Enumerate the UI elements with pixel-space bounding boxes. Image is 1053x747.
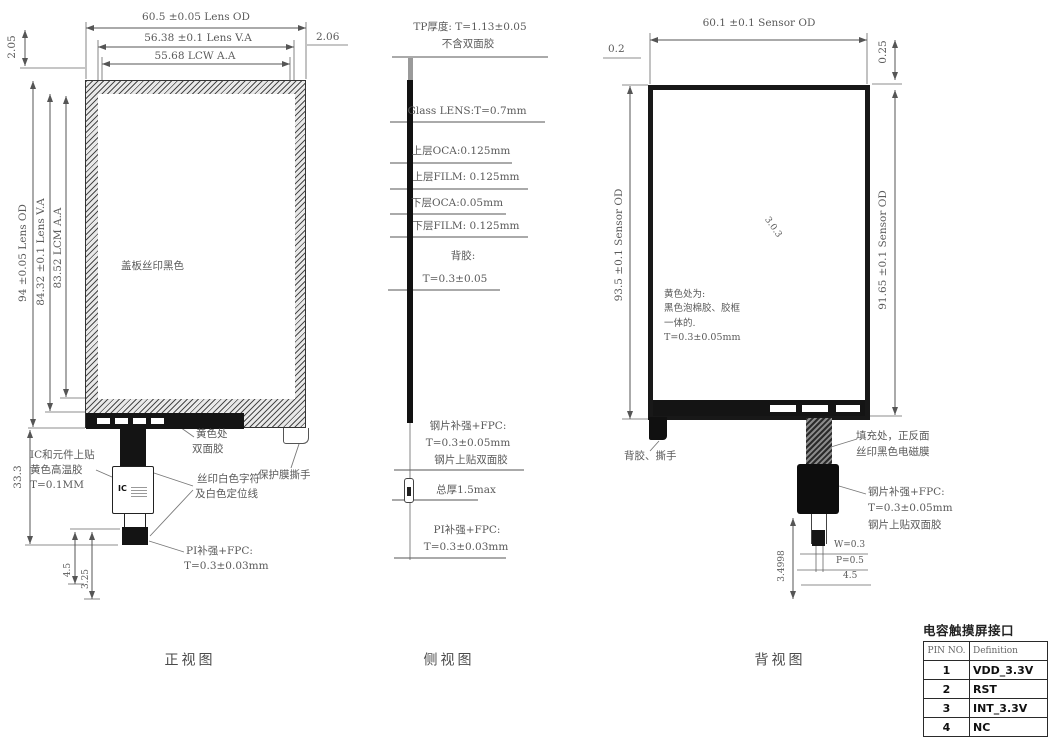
dim-back-0-25: 0.25: [878, 40, 890, 63]
note-fill-line1: 填充处，正反面: [856, 431, 930, 443]
pin-table-header-row: PIN NO. Definition: [924, 642, 1048, 661]
dim-back-0-2: 0.2: [608, 44, 625, 56]
note-back-tear: 背胶、撕手: [624, 451, 677, 463]
back-steel-stiffener: [797, 464, 839, 514]
back-connector-contact: [812, 530, 825, 546]
pin-number: 1: [924, 661, 970, 680]
dim-front-left-va: 84.32 ±0.1 Lens V.A: [36, 198, 48, 306]
note-tp-thickness-line1: TP厚度: T=1.13±0.05: [413, 22, 526, 34]
front-panel-bezel: [85, 80, 306, 428]
front-viewing-area: [98, 94, 295, 399]
note-side-pi-line2: T=0.3±0.03mm: [424, 542, 509, 554]
note-ic-line2: 黄色高温胶: [30, 465, 83, 477]
dim-front-left-aa: 83.52 LCM A.A: [53, 208, 65, 289]
note-cover-silk: 盖板丝印黑色: [121, 261, 184, 273]
pin-definition: NC: [970, 718, 1048, 737]
note-foam-line1: 黄色处为:: [664, 290, 705, 300]
dim-front-3-25: 3.25: [82, 569, 92, 589]
pin-definition: RST: [970, 680, 1048, 699]
bond-pad: [836, 405, 860, 412]
note-side-pi-line1: PI补强+FPC:: [434, 525, 501, 537]
note-back-steel-line2: T=0.3±0.05mm: [868, 503, 953, 515]
front-pi-stiffener: [122, 527, 148, 545]
dim-front-top-od: 60.5 ±0.05 Lens OD: [142, 12, 250, 24]
bond-pad: [133, 418, 146, 424]
front-fpc-tail: [120, 428, 146, 468]
note-foam-line2: 黑色泡棉胶、胶框: [664, 304, 740, 314]
dim-back-4-5: 4.5: [843, 572, 857, 582]
note-side-steel-line3: 钢片上贴双面胶: [434, 455, 508, 467]
side-connector-bump: [404, 478, 414, 503]
note-upper-oca: 上层OCA:0.125mm: [412, 146, 511, 158]
pin-number: 2: [924, 680, 970, 699]
note-glass-lens: Glass LENS:T=0.7mm: [407, 106, 526, 118]
note-lower-film: 下层FILM: 0.125mm: [412, 221, 519, 233]
dim-front-top-aa: 55.68 LCW A.A: [154, 51, 235, 63]
front-view-title: 正视图: [165, 653, 216, 668]
dim-front-2-06: 2.06: [316, 32, 339, 44]
table-row: 3 INT_3.3V: [924, 699, 1048, 718]
dim-front-33-3: 33.3: [13, 465, 25, 488]
back-view-title: 背视图: [755, 653, 806, 668]
ic-component: IC: [112, 466, 154, 514]
note-upper-film: 上层FILM: 0.125mm: [412, 172, 519, 184]
dim-front-left-od: 94 ±0.05 Lens OD: [18, 204, 30, 302]
dim-back-right-od: 91.65 ±0.1 Sensor OD: [878, 190, 890, 310]
note-side-steel-line1: 钢片补强+FPC:: [430, 421, 507, 433]
note-back-adhesive-line2: T=0.3±0.05: [423, 274, 488, 286]
note-side-steel-line2: T=0.3±0.05mm: [426, 438, 511, 450]
table-row: 2 RST: [924, 680, 1048, 699]
pin-table-header-pin: PIN NO.: [924, 642, 970, 661]
bond-pad: [97, 418, 110, 424]
front-bottom-black-band: [86, 413, 244, 429]
back-bottom-black-band: [653, 400, 865, 416]
note-tp-thickness-line2: 不含双面胶: [442, 39, 495, 51]
bond-pad: [115, 418, 128, 424]
dim-back-left-od: 93.5 ±0.1 Sensor OD: [614, 189, 626, 302]
dim-back-top-od: 60.1 ±0.1 Sensor OD: [703, 18, 816, 30]
note-front-pi-line1: PI补强+FPC:: [186, 546, 253, 558]
pin-definition: VDD_3.3V: [970, 661, 1048, 680]
table-row: 4 NC: [924, 718, 1048, 737]
bond-pad: [770, 405, 796, 412]
side-view-title: 侧视图: [424, 653, 475, 668]
dim-back-3-4998: 3.4998: [778, 550, 788, 582]
pin-number: 3: [924, 699, 970, 718]
front-fpc-neck: [124, 514, 146, 528]
note-ic-line3: T=0.1MM: [30, 480, 84, 492]
note-tape-line1: 黄色处: [196, 429, 228, 441]
pin-definition: INT_3.3V: [970, 699, 1048, 718]
pin-number: 4: [924, 718, 970, 737]
back-fpc-tail-filled: [806, 418, 832, 465]
dim-front-4-5: 4.5: [64, 563, 74, 577]
dim-front-2-05: 2.05: [7, 35, 19, 58]
dim-back-w: W=0.3: [834, 541, 865, 551]
dim-front-top-va: 56.38 ±0.1 Lens V.A: [144, 33, 252, 45]
back-tear-tab: [649, 417, 667, 440]
pin-table-header-def: Definition: [970, 642, 1048, 661]
note-protective-film: 保护膜撕手: [258, 470, 311, 482]
ctp-drawing-canvas: IC 60.5 ±0.05 Lens OD 56.38 ±0.1 Lens V.…: [0, 0, 1053, 747]
side-stack-bar: [407, 80, 413, 423]
ic-fine-print: [131, 485, 147, 497]
back-sensor-panel: [648, 85, 870, 420]
pin-table-title: 电容触摸屏接口: [923, 620, 1053, 639]
note-silk-line2: 及白色定位线: [195, 489, 258, 501]
pin-table-grid: PIN NO. Definition 1 VDD_3.3V 2 RST 3 IN…: [923, 641, 1048, 737]
bond-pad: [802, 405, 828, 412]
dim-back-p: P=0.5: [836, 557, 864, 567]
note-silk-line1: 丝印白色字符: [197, 474, 260, 486]
protective-film-tab: [283, 428, 309, 444]
side-top-film-segment: [408, 58, 413, 81]
note-fill-line2: 丝印黑色电磁膜: [856, 447, 930, 459]
note-front-pi-line2: T=0.3±0.03mm: [184, 561, 269, 573]
note-lower-oca: 下层OCA:0.05mm: [411, 198, 503, 210]
note-back-steel-line3: 钢片上贴双面胶: [868, 520, 942, 532]
note-total-thickness: 总厚1.5max: [436, 485, 496, 497]
note-back-steel-line1: 钢片补强+FPC:: [868, 487, 945, 499]
pin-definition-table: 电容触摸屏接口 PIN NO. Definition 1 VDD_3.3V 2 …: [923, 620, 1053, 737]
side-connector-core: [407, 487, 411, 496]
note-tape-line2: 双面胶: [192, 444, 224, 456]
note-foam-line3: 一体的.: [664, 319, 696, 329]
note-foam-line4: T=0.3±0.05mm: [664, 333, 741, 343]
note-ic-line1: IC和元件上贴: [30, 450, 95, 462]
table-row: 1 VDD_3.3V: [924, 661, 1048, 680]
ic-label: IC: [118, 484, 127, 493]
bond-pad: [151, 418, 164, 424]
note-back-adhesive-line1: 背胶:: [451, 251, 476, 263]
